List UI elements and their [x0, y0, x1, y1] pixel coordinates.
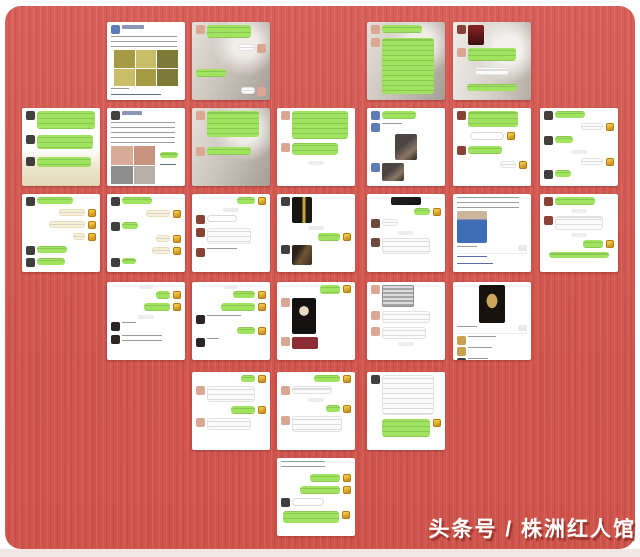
- white-bubble: [555, 216, 603, 230]
- chat-row: [26, 197, 96, 206]
- green-bubble: [549, 252, 609, 258]
- chat-row: [281, 226, 351, 230]
- photo-thumbnail: [114, 69, 135, 87]
- chat-row: [457, 197, 527, 209]
- green-bubble: [231, 406, 255, 414]
- chat-row: [371, 231, 441, 235]
- chat-row: [196, 111, 266, 137]
- sticker-icon: [342, 511, 350, 519]
- chat-row: [457, 111, 527, 127]
- green-bubble: [207, 147, 251, 155]
- avatar: [196, 25, 205, 34]
- green-bubble: [37, 111, 95, 129]
- avatar: [26, 135, 35, 144]
- photo-thumbnail: [111, 146, 133, 165]
- avatar: [281, 498, 290, 507]
- chat-row: [196, 386, 266, 402]
- timestamp-pill: [398, 231, 414, 235]
- text-lines: [207, 248, 237, 253]
- photo-grid: [111, 146, 155, 184]
- chat-row: [196, 25, 266, 38]
- photo: [391, 197, 421, 205]
- chat-row: [26, 209, 96, 217]
- chat-screenshot-r3c3: [192, 194, 270, 272]
- chat-screenshot-r4c4: [277, 282, 355, 360]
- green-bubble: [555, 197, 595, 205]
- meta-row: [457, 245, 527, 251]
- green-bubble: [144, 303, 170, 311]
- chat-row: [371, 134, 441, 160]
- side-column: [160, 152, 178, 168]
- timestamp-pill: [224, 285, 238, 289]
- avatar: [281, 143, 290, 152]
- chat-row: [196, 375, 266, 383]
- avatar: [281, 337, 290, 346]
- green-bubble: [555, 111, 585, 118]
- chat-row: [371, 285, 441, 307]
- timestamp-pill: [308, 398, 324, 402]
- chat-row: [457, 48, 527, 61]
- green-bubble: [414, 208, 430, 215]
- chat-row: [371, 25, 441, 34]
- green-bubble: [237, 197, 255, 204]
- white-bubble: [207, 418, 251, 430]
- chat-row: [281, 461, 351, 470]
- green-bubble: [221, 303, 255, 311]
- avatar: [371, 311, 380, 320]
- avatar: [457, 347, 466, 356]
- avatar: [457, 111, 466, 120]
- watermark-text: 头条号 / 株洲红人馆: [426, 513, 636, 543]
- chat-screenshot-r6c4: [277, 458, 355, 536]
- avatar: [196, 215, 205, 224]
- chat-row: [544, 233, 614, 237]
- chat-row: [111, 322, 181, 331]
- avatar: [281, 416, 290, 425]
- photo: [292, 298, 316, 334]
- chat-row: [457, 161, 527, 169]
- sticker-icon: [258, 197, 266, 205]
- white-bubble: [382, 327, 426, 339]
- comment-icon: [518, 325, 527, 331]
- chat-row: [281, 511, 351, 523]
- chat-screenshot-r2c4: [277, 108, 355, 186]
- chat-row: [281, 416, 351, 432]
- avatar: [196, 111, 205, 120]
- chat-screenshot-r2c3: [192, 108, 270, 186]
- timestamp-text: [457, 246, 477, 250]
- chat-row: [544, 136, 614, 145]
- chat-row: [457, 67, 527, 75]
- avatar: [371, 38, 380, 47]
- green-bubble: [300, 486, 340, 494]
- avatar: [26, 111, 35, 120]
- avatar: [371, 285, 380, 294]
- avatar: [371, 238, 380, 247]
- avatar: [281, 245, 290, 254]
- chat-screenshot-r4c3: [192, 282, 270, 360]
- sticker-icon: [88, 209, 96, 217]
- white-bubble: [382, 219, 398, 226]
- chat-row: [111, 146, 181, 184]
- chat-row: [111, 222, 181, 231]
- text-lines: [111, 88, 129, 92]
- sticker-icon: [343, 405, 351, 413]
- chat-screenshot-r2c6: [453, 108, 531, 186]
- green-bubble: [292, 111, 348, 139]
- photo-thumbnail: [111, 166, 133, 185]
- chat-row: [26, 135, 96, 149]
- green-bubble: [37, 135, 93, 149]
- green-bubble: [196, 69, 226, 77]
- white-bubble: [581, 123, 603, 130]
- chat-row: [281, 111, 351, 139]
- sticker-icon: [88, 221, 96, 229]
- text-lines: [111, 36, 177, 48]
- green-bubble: [382, 111, 416, 119]
- chat-screenshot-r3c6: [453, 194, 531, 272]
- timestamp-pill: [223, 208, 239, 212]
- pale-bubble: [49, 221, 85, 228]
- green-bubble: [314, 375, 340, 382]
- green-bubble: [467, 84, 517, 91]
- photo: [292, 337, 318, 349]
- green-bubble: [241, 375, 255, 382]
- timestamp-pill: [139, 285, 153, 289]
- chat-row: [457, 211, 527, 243]
- sticker-icon: [343, 233, 351, 241]
- avatar: [371, 123, 380, 132]
- text-lines: [207, 315, 241, 320]
- text-lines: [111, 122, 175, 144]
- chat-row: [371, 163, 441, 181]
- chat-screenshot-r4c5: [367, 282, 445, 360]
- white-bubble: [207, 386, 255, 402]
- chat-screenshot-r4c2: [107, 282, 185, 360]
- pale-bubble: [146, 210, 170, 217]
- chat-row: [196, 303, 266, 311]
- chat-row: [457, 263, 527, 268]
- chat-row: [544, 150, 614, 154]
- chat-screenshot-r4c6: [453, 282, 531, 360]
- avatar: [544, 170, 553, 179]
- avatar: [281, 386, 290, 395]
- chat-row: [281, 298, 351, 334]
- chat-screenshot-r5c3: [192, 372, 270, 450]
- avatar: [457, 336, 466, 345]
- chat-row: [281, 498, 351, 507]
- pale-bubble: [59, 209, 85, 216]
- photo-thumbnail: [136, 69, 157, 87]
- green-bubble: [207, 25, 251, 38]
- sticker-icon: [606, 158, 614, 166]
- white-bubble: [241, 87, 255, 94]
- photo-thumbnail: [136, 50, 157, 68]
- sticker-icon: [519, 161, 527, 169]
- text-lines: [468, 358, 488, 360]
- green-bubble: [326, 405, 340, 412]
- sticker-icon: [173, 247, 181, 255]
- sticker-icon: [173, 210, 181, 218]
- avatar: [457, 146, 466, 155]
- chat-row: [111, 247, 181, 255]
- white-bubble: [239, 44, 255, 51]
- chat-row: [457, 336, 527, 345]
- avatar: [196, 386, 205, 395]
- chat-row: [111, 315, 181, 319]
- green-bubble: [156, 291, 170, 299]
- chat-row: [457, 347, 527, 356]
- sticker-icon: [173, 291, 181, 299]
- chat-row: [281, 161, 351, 165]
- avatar: [457, 48, 466, 57]
- chat-row: [196, 215, 266, 224]
- white-bubble: [581, 158, 603, 165]
- chat-row: [457, 25, 527, 45]
- text-lines: [207, 338, 219, 343]
- photo: [457, 211, 487, 243]
- chat-screenshot-r3c4: [277, 194, 355, 272]
- chat-row: [111, 25, 181, 34]
- avatar: [26, 197, 35, 206]
- chat-row: [371, 219, 441, 228]
- chat-row: [457, 146, 527, 155]
- chat-row: [196, 87, 266, 96]
- chat-row: [26, 233, 96, 241]
- white-bubble: [292, 386, 332, 394]
- chat-row: [196, 228, 266, 244]
- text-lines: [457, 197, 519, 209]
- green-bubble: [310, 474, 340, 482]
- green-bubble: [320, 285, 340, 294]
- green-bubble: [122, 258, 136, 264]
- chat-screenshot-r5c5: [367, 372, 445, 450]
- avatar: [457, 358, 466, 360]
- sticker-icon: [258, 406, 266, 414]
- chat-screenshot-r5c4: [277, 372, 355, 450]
- photo-thumbnail: [134, 166, 156, 185]
- text-lines: [468, 347, 492, 352]
- chat-row: [457, 245, 527, 251]
- green-bubble: [233, 291, 255, 298]
- chat-screenshot-r2c2: [107, 108, 185, 186]
- white-bubble: [475, 67, 509, 75]
- sticker-icon: [258, 327, 266, 335]
- white-bubble: [207, 228, 251, 244]
- chat-row: [111, 291, 181, 299]
- chat-row: [281, 285, 351, 294]
- avatar: [281, 298, 290, 307]
- green-bubble: [207, 111, 259, 137]
- pale-bubble: [73, 233, 85, 240]
- avatar: [111, 25, 120, 34]
- sticker-icon: [258, 375, 266, 383]
- avatar: [371, 111, 380, 120]
- sticker-icon: [173, 235, 181, 243]
- avatar: [257, 44, 266, 53]
- input-bubble: [470, 132, 504, 140]
- photo-thumbnail: [134, 146, 156, 165]
- chat-row: [196, 315, 266, 324]
- avatar: [544, 197, 553, 206]
- chat-screenshot-r1c5: [367, 22, 445, 100]
- green-bubble: [382, 38, 434, 94]
- avatar: [371, 163, 380, 172]
- chat-row: [457, 333, 527, 334]
- avatar: [371, 219, 380, 228]
- chat-row: [371, 342, 441, 346]
- chat-row: [111, 50, 181, 86]
- avatar: [544, 111, 553, 120]
- collage: [0, 0, 640, 557]
- chat-screenshot-r2c7: [540, 108, 618, 186]
- sticker-icon: [343, 285, 351, 293]
- chat-row: [544, 252, 614, 258]
- green-bubble: [318, 233, 340, 241]
- photo-thumbnail: [114, 50, 135, 68]
- green-bubble: [237, 327, 255, 334]
- avatar: [111, 111, 120, 120]
- chat-screenshot-r3c1: [22, 194, 100, 272]
- green-bubble: [37, 246, 67, 253]
- chat-row: [281, 143, 351, 155]
- chat-row: [544, 123, 614, 131]
- photo: [395, 134, 417, 160]
- chat-row: [196, 69, 266, 77]
- white-bubble: [382, 311, 430, 323]
- chat-row: [111, 285, 181, 289]
- photo: [292, 197, 312, 223]
- chat-row: [457, 84, 527, 91]
- text-lines: [122, 335, 162, 344]
- chat-row: [26, 111, 96, 129]
- timestamp-text: [457, 326, 477, 330]
- chat-row: [281, 398, 351, 402]
- avatar: [111, 222, 120, 231]
- chat-row: [111, 258, 181, 267]
- green-bubble: [122, 222, 138, 229]
- comment-icon: [518, 245, 527, 251]
- avatar: [371, 327, 380, 336]
- avatar: [196, 418, 205, 427]
- green-bubble: [37, 258, 65, 265]
- text-lines: [122, 322, 136, 327]
- sticker-icon: [173, 303, 181, 311]
- green-bubble: [468, 48, 516, 61]
- timestamp-pill: [308, 161, 324, 165]
- chat-row: [371, 238, 441, 254]
- pale-bubble: [156, 235, 170, 242]
- chat-row: [26, 221, 96, 229]
- green-bubble: [283, 511, 339, 523]
- avatar: [371, 25, 380, 34]
- chat-row: [26, 157, 96, 167]
- white-bubble: [292, 416, 342, 432]
- input-bubble: [292, 498, 324, 506]
- sticker-icon: [258, 291, 266, 299]
- photo-thumbnail: [157, 69, 178, 87]
- chat-screenshot-r1c2: [107, 22, 185, 100]
- avatar: [544, 136, 553, 145]
- green-bubble: [37, 197, 73, 204]
- link-text: [457, 263, 493, 268]
- chat-row: [457, 256, 527, 261]
- avatar: [196, 315, 205, 324]
- sticker-icon: [343, 375, 351, 383]
- divider: [457, 333, 527, 334]
- sticker-icon: [343, 474, 351, 482]
- photo: [382, 285, 414, 307]
- chat-screenshot-r3c2: [107, 194, 185, 272]
- link-text: [160, 164, 176, 168]
- sticker-icon: [258, 303, 266, 311]
- meta-row: [457, 325, 527, 331]
- chat-row: [371, 111, 441, 120]
- chat-row: [281, 197, 351, 223]
- sticker-icon: [433, 419, 441, 427]
- sticker-icon: [606, 123, 614, 131]
- green-bubble: [583, 240, 603, 248]
- chat-row: [196, 291, 266, 299]
- chat-row: [26, 246, 96, 255]
- photo-grid: [114, 50, 178, 86]
- chat-row: [281, 245, 351, 265]
- green-bubble: [160, 152, 178, 158]
- chat-row: [544, 170, 614, 179]
- chat-row: [371, 311, 441, 323]
- avatar: [196, 228, 205, 237]
- chat-row: [196, 327, 266, 335]
- chat-row: [196, 248, 266, 257]
- chat-row: [196, 208, 266, 212]
- chat-row: [196, 406, 266, 414]
- chat-row: [544, 158, 614, 166]
- chat-row: [371, 419, 441, 437]
- link-text: [111, 94, 161, 99]
- avatar: [26, 246, 35, 255]
- chat-row: [111, 122, 181, 144]
- chat-row: [281, 337, 351, 349]
- white-bubble: [382, 375, 434, 415]
- chat-row: [196, 197, 266, 205]
- avatar: [371, 375, 380, 384]
- sticker-icon: [433, 208, 441, 216]
- chat-row: [371, 208, 441, 216]
- chat-row: [111, 235, 181, 243]
- avatar: [26, 157, 35, 166]
- chat-row: [111, 335, 181, 344]
- sticker-icon: [343, 486, 351, 494]
- sticker-icon: [507, 132, 515, 140]
- avatar: [111, 322, 120, 331]
- photo: [468, 25, 484, 45]
- green-bubble: [468, 146, 502, 154]
- chat-row: [281, 386, 351, 395]
- chat-row: [544, 240, 614, 248]
- green-bubble: [468, 111, 518, 127]
- chat-row: [544, 111, 614, 120]
- green-bubble: [37, 157, 91, 167]
- text-lines: [281, 461, 325, 470]
- chat-row: [544, 216, 614, 230]
- sticker-icon: [606, 240, 614, 248]
- pale-bubble: [152, 247, 170, 254]
- chat-row: [371, 123, 441, 132]
- photo: [292, 245, 312, 265]
- chat-row: [281, 233, 351, 241]
- username-bar: [122, 111, 142, 115]
- chat-row: [371, 375, 441, 415]
